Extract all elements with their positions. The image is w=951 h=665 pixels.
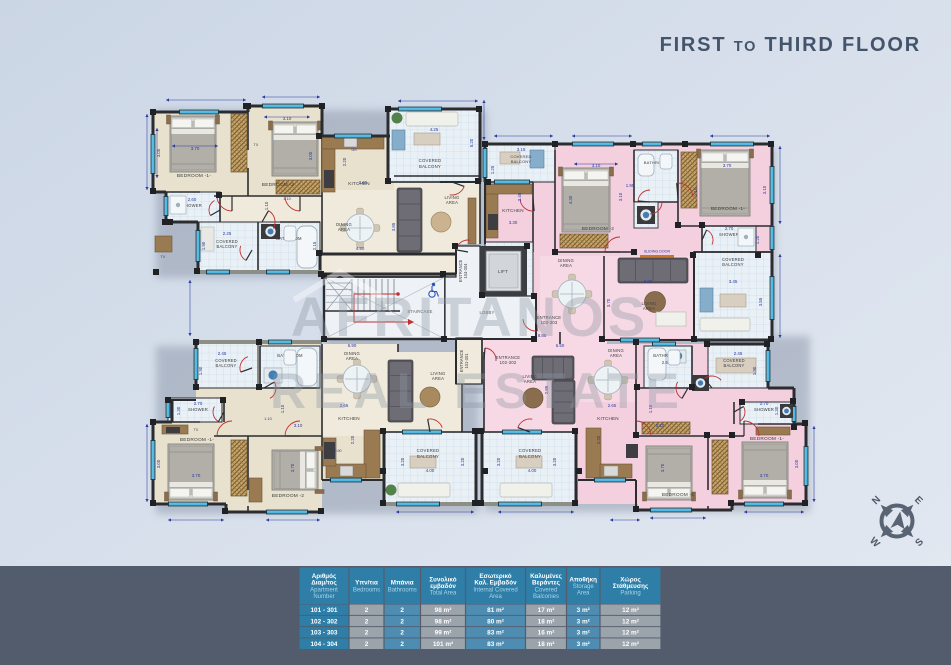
svg-text:1.25: 1.25 — [490, 165, 495, 174]
svg-text:2: 2 — [365, 607, 369, 614]
svg-text:18 m²: 18 m² — [538, 618, 555, 625]
svg-text:3.20: 3.20 — [460, 457, 465, 466]
svg-text:Bathrooms: Bathrooms — [388, 587, 417, 593]
svg-text:COVERED: COVERED — [419, 158, 442, 163]
svg-text:2.70: 2.70 — [760, 401, 769, 406]
svg-text:4.00: 4.00 — [426, 468, 435, 473]
svg-text:2.60: 2.60 — [188, 197, 197, 202]
svg-text:101 - 301: 101 - 301 — [310, 607, 337, 614]
svg-text:3.10: 3.10 — [762, 185, 767, 194]
svg-text:BALCONY: BALCONY — [511, 159, 532, 164]
svg-text:3.70: 3.70 — [660, 463, 665, 472]
svg-text:2.70: 2.70 — [725, 226, 734, 231]
svg-text:4.30: 4.30 — [568, 195, 573, 204]
svg-text:2.65: 2.65 — [359, 180, 368, 185]
svg-text:Internal Covered: Internal Covered — [473, 587, 517, 593]
svg-text:2.70: 2.70 — [194, 401, 203, 406]
svg-text:12 m²: 12 m² — [622, 641, 639, 648]
svg-text:Parking: Parking — [620, 591, 640, 597]
svg-text:LIFT: LIFT — [498, 269, 508, 274]
svg-text:3.85: 3.85 — [391, 222, 396, 231]
svg-text:Area: Area — [489, 594, 502, 600]
svg-text:104-304: 104-304 — [463, 263, 468, 279]
svg-text:TV: TV — [161, 255, 166, 259]
svg-text:1.90: 1.90 — [752, 366, 757, 375]
svg-text:Balconies: Balconies — [533, 594, 559, 600]
svg-text:3.20: 3.20 — [496, 457, 501, 466]
svg-text:16 m²: 16 m² — [538, 630, 555, 637]
svg-text:Covered: Covered — [535, 587, 558, 593]
svg-text:4.00: 4.00 — [528, 468, 537, 473]
svg-text:εμβαδόν: εμβαδόν — [430, 583, 456, 590]
svg-text:1.20: 1.20 — [755, 235, 760, 244]
svg-text:TX: TX — [194, 428, 199, 432]
svg-text:BEDROOM -2: BEDROOM -2 — [582, 226, 615, 232]
svg-text:2.20: 2.20 — [596, 435, 601, 444]
svg-text:3.10: 3.10 — [294, 423, 303, 428]
svg-text:BALCONY: BALCONY — [519, 454, 541, 459]
svg-text:6.85: 6.85 — [644, 279, 653, 284]
svg-text:98 m²: 98 m² — [435, 618, 452, 625]
svg-text:Total Area: Total Area — [430, 591, 457, 597]
svg-text:4.90: 4.90 — [356, 246, 365, 251]
svg-text:SHOWER: SHOWER — [188, 407, 208, 412]
svg-text:FIRST TO THIRD FLOOR: FIRST TO THIRD FLOOR — [660, 34, 921, 56]
svg-text:SLIDING DOOR: SLIDING DOOR — [644, 250, 671, 254]
svg-text:KITCHEN: KITCHEN — [502, 208, 524, 213]
svg-text:17 m²: 17 m² — [538, 607, 555, 614]
svg-text:3.70: 3.70 — [760, 473, 769, 478]
svg-text:BEDROOM -1-: BEDROOM -1- — [177, 173, 211, 179]
svg-text:104 - 304: 104 - 304 — [310, 641, 337, 648]
svg-text:Apartment: Apartment — [310, 587, 338, 593]
svg-text:80 m²: 80 m² — [487, 618, 504, 625]
svg-text:3.15: 3.15 — [517, 147, 526, 152]
svg-text:2: 2 — [400, 641, 404, 648]
svg-text:1.30: 1.30 — [774, 406, 779, 415]
svg-text:12 m²: 12 m² — [622, 630, 639, 637]
svg-text:3.20: 3.20 — [552, 457, 557, 466]
svg-text:0.90: 0.90 — [335, 449, 342, 453]
svg-text:BALCONY: BALCONY — [722, 262, 743, 267]
svg-text:Καλ. Εμβαδόν: Καλ. Εμβαδόν — [474, 579, 517, 587]
svg-text:2: 2 — [365, 641, 369, 648]
svg-text:BEDROOM -2: BEDROOM -2 — [272, 493, 305, 499]
svg-text:COVERED: COVERED — [417, 448, 440, 453]
svg-text:83 m²: 83 m² — [487, 630, 504, 637]
svg-text:3.20: 3.20 — [400, 457, 405, 466]
svg-text:BEDROOM -2: BEDROOM -2 — [662, 492, 695, 498]
svg-text:2: 2 — [365, 618, 369, 625]
svg-text:3.10: 3.10 — [656, 423, 665, 428]
svg-text:2.20: 2.20 — [342, 157, 347, 166]
svg-text:3 m²: 3 m² — [577, 607, 590, 614]
svg-text:AREA: AREA — [560, 263, 572, 268]
svg-text:3.70: 3.70 — [192, 473, 201, 478]
svg-text:5.20: 5.20 — [469, 138, 474, 147]
svg-text:3.00: 3.00 — [156, 459, 161, 468]
svg-text:3.70: 3.70 — [723, 163, 732, 168]
svg-text:BEDROOM -1-: BEDROOM -1- — [750, 436, 784, 442]
svg-text:18 m²: 18 m² — [538, 641, 555, 648]
svg-text:99 m²: 99 m² — [435, 630, 452, 637]
svg-text:1.30: 1.30 — [176, 406, 181, 415]
svg-text:AREA: AREA — [446, 200, 458, 205]
svg-text:3 m²: 3 m² — [577, 641, 590, 648]
svg-text:BEDROOM -2: BEDROOM -2 — [262, 182, 295, 188]
svg-text:3 m²: 3 m² — [577, 630, 590, 637]
svg-text:Διαμ/τος: Διαμ/τος — [311, 580, 337, 587]
svg-text:1.90: 1.90 — [198, 366, 203, 375]
svg-text:2.25: 2.25 — [223, 231, 232, 236]
svg-text:Βεράντες: Βεράντες — [532, 580, 561, 587]
svg-text:Αποθήκη: Αποθήκη — [569, 576, 597, 583]
svg-text:81 m²: 81 m² — [487, 607, 504, 614]
svg-text:Area: Area — [577, 591, 590, 597]
svg-text:1.10: 1.10 — [693, 187, 698, 196]
svg-text:3.10: 3.10 — [618, 192, 623, 201]
svg-text:BALCONY: BALCONY — [419, 164, 441, 169]
svg-text:4.25: 4.25 — [430, 127, 439, 132]
svg-text:Μπάνια: Μπάνια — [391, 580, 414, 587]
svg-text:98 m²: 98 m² — [435, 607, 452, 614]
svg-text:101 m²: 101 m² — [433, 641, 453, 648]
svg-text:3.70: 3.70 — [191, 146, 200, 151]
svg-text:2: 2 — [400, 618, 404, 625]
svg-text:AREA: AREA — [338, 227, 350, 232]
svg-text:AREA: AREA — [346, 356, 358, 361]
svg-text:BALCONY: BALCONY — [216, 363, 237, 368]
svg-text:2.45: 2.45 — [517, 192, 522, 201]
svg-text:1.90: 1.90 — [201, 241, 206, 250]
svg-text:1.10: 1.10 — [283, 197, 290, 201]
svg-text:3.55: 3.55 — [758, 297, 763, 306]
svg-text:COVERED: COVERED — [519, 448, 542, 453]
svg-text:Number: Number — [313, 594, 334, 600]
svg-text:BALCONY: BALCONY — [417, 454, 439, 459]
svg-text:Bedrooms: Bedrooms — [353, 587, 380, 593]
svg-text:AREA: AREA — [610, 353, 622, 358]
svg-text:3.30: 3.30 — [509, 220, 518, 225]
svg-text:1.95: 1.95 — [626, 183, 635, 188]
svg-text:BEDROOM -1-: BEDROOM -1- — [711, 206, 745, 212]
svg-text:AFRITANOS: AFRITANOS — [291, 285, 650, 348]
svg-text:2.20: 2.20 — [350, 435, 355, 444]
svg-text:BALCONY: BALCONY — [724, 363, 745, 368]
svg-text:3.00: 3.00 — [308, 151, 313, 160]
svg-text:12 m²: 12 m² — [622, 618, 639, 625]
svg-text:2.15: 2.15 — [312, 241, 317, 250]
svg-text:83 m²: 83 m² — [487, 641, 504, 648]
svg-text:REAL ESTATE: REAL ESTATE — [270, 363, 686, 419]
svg-text:0m: 0m — [352, 148, 357, 152]
svg-text:2: 2 — [365, 630, 369, 637]
svg-text:TX: TX — [254, 143, 259, 147]
svg-text:12 m²: 12 m² — [622, 607, 639, 614]
svg-text:2.45: 2.45 — [218, 351, 227, 356]
svg-text:2.45: 2.45 — [734, 351, 743, 356]
svg-text:Στάθμευσης: Στάθμευσης — [613, 583, 649, 590]
svg-text:102 - 302: 102 - 302 — [310, 618, 337, 625]
svg-text:3.00: 3.00 — [794, 459, 799, 468]
svg-text:3.45: 3.45 — [729, 279, 738, 284]
svg-text:2: 2 — [400, 607, 404, 614]
svg-text:2: 2 — [400, 630, 404, 637]
svg-text:BALCONY: BALCONY — [217, 244, 238, 249]
svg-text:3.70: 3.70 — [290, 463, 295, 472]
svg-text:103 - 303: 103 - 303 — [310, 630, 337, 637]
svg-text:SHOWER: SHOWER — [719, 232, 739, 237]
svg-text:Υπν/τια: Υπν/τια — [355, 580, 378, 587]
svg-text:Storage: Storage — [573, 584, 595, 590]
svg-text:BEDROOM -1-: BEDROOM -1- — [180, 437, 214, 443]
svg-text:1.10: 1.10 — [264, 201, 269, 210]
svg-text:3 m²: 3 m² — [577, 618, 590, 625]
svg-text:SHOWER: SHOWER — [754, 407, 774, 412]
